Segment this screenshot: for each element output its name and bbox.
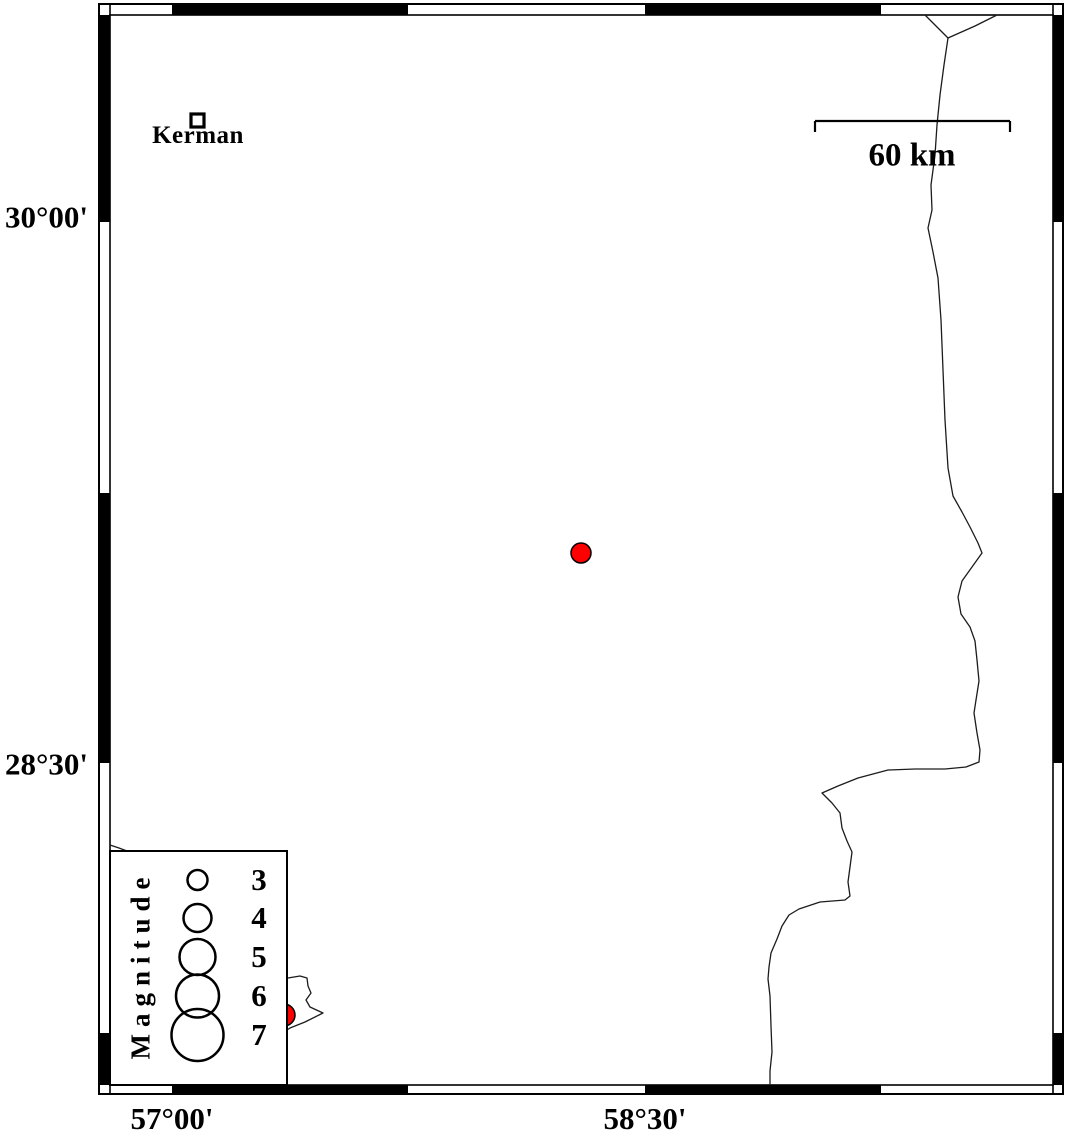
legend-value-7: 7 <box>251 1017 267 1053</box>
frame-segment <box>172 4 408 15</box>
frame-segment <box>172 1085 408 1095</box>
frame-segment <box>1053 15 1063 222</box>
lon-label-58-30: 58°30' <box>603 1101 686 1136</box>
frame-segment <box>645 1085 881 1095</box>
frame-segment <box>99 1033 110 1085</box>
epicenter-dot <box>571 543 591 563</box>
legend-value-6: 6 <box>251 978 267 1014</box>
legend-title: Magnitude <box>126 870 157 1059</box>
legend-value-3: 3 <box>251 862 267 898</box>
frame-segment <box>99 493 110 763</box>
frame-segment <box>1053 1033 1063 1085</box>
boundary-main <box>768 38 982 1085</box>
lat-label-28-30: 28°30' <box>0 747 88 783</box>
lat-label-30-00: 30°00' <box>0 200 88 236</box>
lon-label-57-00: 57°00' <box>130 1101 213 1136</box>
frame-segment <box>645 4 881 15</box>
city-label-kerman: Kerman <box>152 122 244 150</box>
epicenters <box>273 543 591 1026</box>
boundary-branch-east <box>948 15 997 38</box>
boundary-branch-west <box>925 15 948 38</box>
map-figure: 30°00' 28°30' 57°00' 58°30' Kerman 60 km… <box>0 0 1066 1136</box>
frame-segment <box>1053 493 1063 763</box>
legend-value-4: 4 <box>251 900 267 936</box>
legend-value-5: 5 <box>251 939 267 975</box>
frame-segment <box>99 15 110 222</box>
scale-bar-label: 60 km <box>868 138 955 175</box>
scale-bar <box>815 121 1010 132</box>
